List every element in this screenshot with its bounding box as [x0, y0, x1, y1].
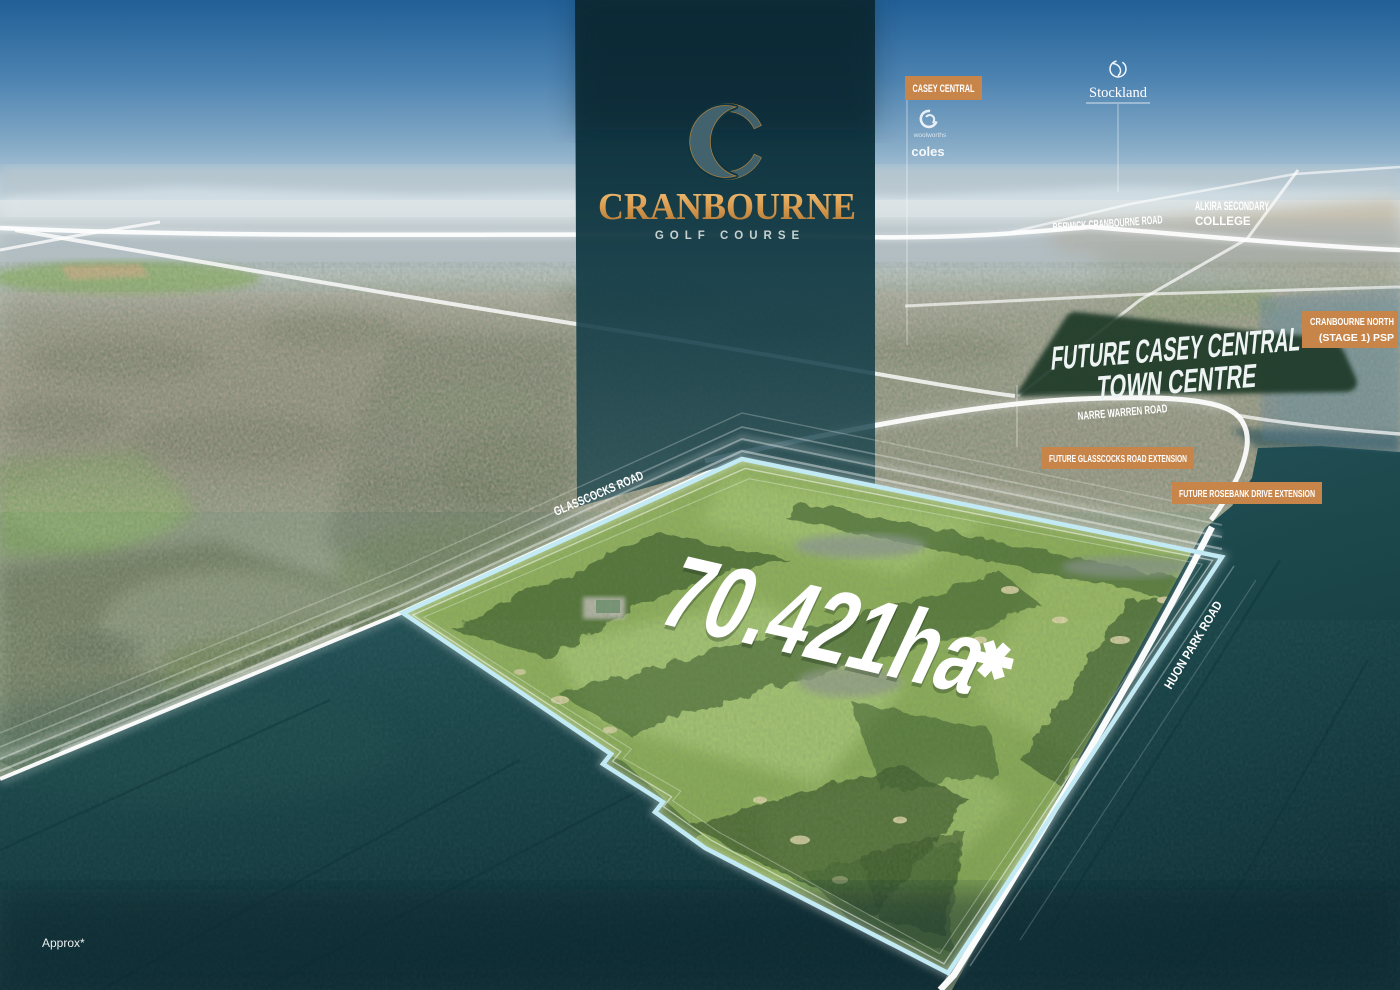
- svg-text:ALKIRA SECONDARY: ALKIRA SECONDARY: [1195, 201, 1269, 213]
- svg-text:(STAGE 1) PSP: (STAGE 1) PSP: [1319, 332, 1394, 344]
- svg-text:Approx*: Approx*: [42, 936, 85, 950]
- svg-text:Stockland: Stockland: [1089, 85, 1148, 101]
- svg-text:FUTURE GLASSCOCKS ROAD EXTENSI: FUTURE GLASSCOCKS ROAD EXTENSION: [1049, 453, 1187, 465]
- svg-text:CASEY CENTRAL: CASEY CENTRAL: [913, 83, 975, 95]
- svg-text:GOLF COURSE: GOLF COURSE: [655, 230, 805, 242]
- svg-text:coles: coles: [911, 144, 944, 159]
- svg-text:FUTURE ROSEBANK DRIVE EXTENSIO: FUTURE ROSEBANK DRIVE EXTENSION: [1179, 488, 1315, 500]
- svg-text:woolworths: woolworths: [913, 132, 947, 139]
- svg-text:CRANBOURNE: CRANBOURNE: [598, 186, 856, 228]
- svg-text:CRANBOURNE NORTH: CRANBOURNE NORTH: [1310, 316, 1394, 328]
- svg-text:COLLEGE: COLLEGE: [1195, 216, 1251, 228]
